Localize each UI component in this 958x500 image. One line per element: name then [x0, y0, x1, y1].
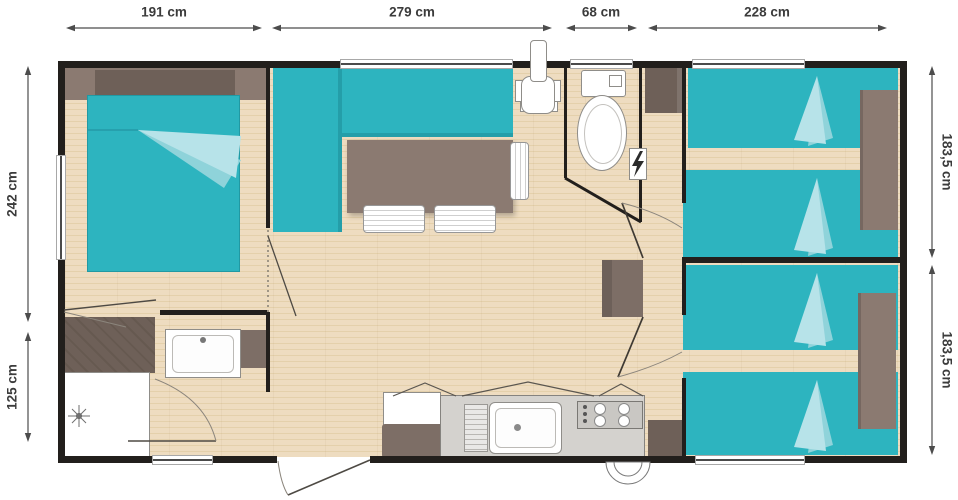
window [570, 59, 633, 69]
bedroom-wall [682, 68, 686, 203]
dimension-label-top-1: 191 cm [141, 5, 187, 20]
hall-wardrobe-top [645, 68, 685, 113]
window [692, 59, 805, 69]
wall [805, 61, 907, 68]
wall [58, 61, 340, 68]
chair [363, 205, 425, 233]
interior-wall [266, 312, 270, 392]
dimension-label-left-1: 242 cm [5, 171, 20, 217]
wc-wall [639, 68, 642, 222]
interior-wall [160, 310, 267, 315]
electrical-panel [629, 148, 647, 180]
shower-room-wardrobe [62, 317, 155, 373]
dimension-label-top-3: 68 cm [582, 5, 620, 20]
sofa-left-seat [273, 68, 342, 232]
bedroom-wall [682, 258, 686, 315]
window [56, 155, 66, 260]
dimension-label-top-2: 279 cm [389, 5, 435, 20]
wall [370, 456, 695, 463]
dimension-label-right-1: 183,5 cm [940, 133, 955, 190]
vanity-faucet [200, 337, 206, 343]
wc-wall [564, 68, 567, 178]
master-headboard [95, 70, 235, 97]
hall-wardrobe-bottom [648, 420, 685, 458]
sink-drainer [464, 404, 488, 452]
wall [213, 456, 277, 463]
wall [805, 456, 907, 463]
dining-table [347, 140, 513, 213]
window [340, 59, 513, 69]
double-bed [87, 95, 240, 272]
hall-cabinet [602, 260, 643, 317]
nightstand-top [860, 90, 898, 230]
bedroom-divider-wall [682, 257, 900, 263]
wall [58, 61, 65, 155]
dimension-label-right-2: 183,5 cm [940, 331, 955, 388]
toilet-bowl-inner [584, 104, 622, 164]
window [695, 455, 805, 465]
kitchen-faucet [514, 424, 521, 431]
fridge [383, 392, 441, 428]
wall [900, 61, 907, 463]
nightstand-bottom [858, 293, 896, 429]
kitchen-sink-basin [495, 408, 556, 448]
wall [58, 260, 65, 463]
interior-wall [266, 68, 270, 228]
toilet-flush-button [609, 75, 622, 87]
gas-hob [577, 401, 643, 429]
bedroom-wall [682, 378, 686, 457]
wall [633, 61, 692, 68]
wall [58, 456, 152, 463]
window [152, 455, 213, 465]
water-heater-flue [530, 40, 547, 82]
chair [510, 142, 529, 200]
gas-locker [606, 462, 650, 484]
vanity-side-cabinet [241, 330, 267, 368]
floor-plan: 191 cm 279 cm 68 cm 228 cm 242 cm 125 cm… [0, 0, 958, 500]
shower-tray [62, 372, 150, 459]
chair [434, 205, 496, 233]
kitchen-bench-seat [382, 424, 448, 458]
entrance-door [278, 460, 370, 495]
dimension-label-top-4: 228 cm [744, 5, 790, 20]
dimension-label-left-2: 125 cm [5, 364, 20, 410]
